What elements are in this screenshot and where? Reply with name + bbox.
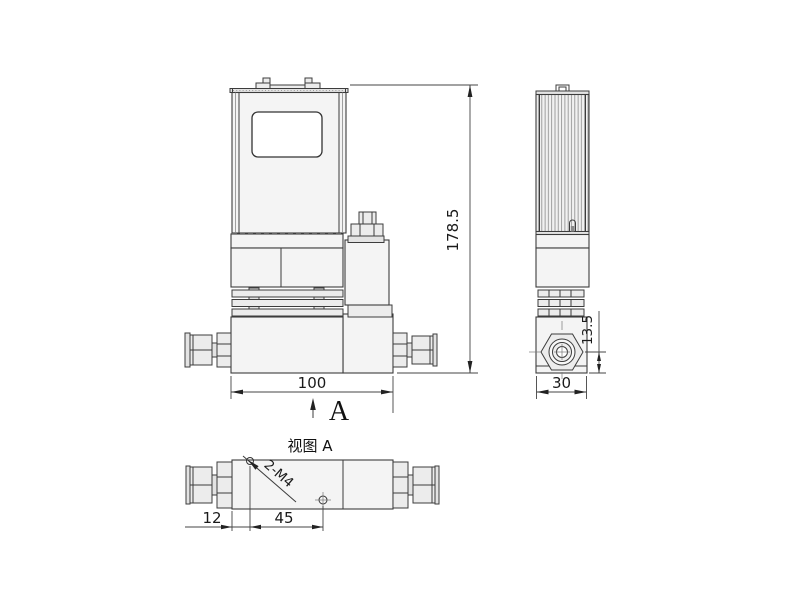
top-plate <box>230 89 348 93</box>
section-letter: A <box>329 396 350 427</box>
hole-spacing-dimension-text: 45 <box>274 509 293 527</box>
bottom-view: 2-M4 12 45 <box>185 456 439 531</box>
display-window <box>252 112 322 157</box>
valve-adjustment-cap <box>359 212 376 224</box>
side-heat-sink-fins <box>538 290 584 316</box>
outlet-fitting <box>393 333 437 367</box>
view-direction-arrow: A <box>310 396 350 427</box>
view-a-title: 视图 A <box>287 437 333 455</box>
heat-sink-fins <box>232 288 343 317</box>
bottom-inlet-fitting <box>186 462 232 508</box>
solenoid-valve <box>345 212 392 317</box>
port-center-dimension-text: 13.5 <box>580 315 596 345</box>
mid-plate <box>231 234 343 248</box>
sensor-block <box>231 248 343 287</box>
base-block <box>231 314 393 373</box>
front-view <box>185 78 437 373</box>
side-sensor-block <box>536 248 589 287</box>
top-connector-right <box>305 78 320 89</box>
dimension-depth: 30 <box>537 374 587 399</box>
top-connector-left <box>256 78 270 89</box>
depth-dimension-text: 30 <box>552 374 571 392</box>
technical-drawing-canvas: 178.5 100 A <box>0 0 800 600</box>
height-dimension-text: 178.5 <box>444 209 462 252</box>
inlet-fitting <box>185 333 231 367</box>
side-mid-plate <box>536 235 589 249</box>
technical-drawing: 178.5 100 A <box>0 0 800 600</box>
hole-offset-dimension-text: 12 <box>202 509 221 527</box>
side-top-connector <box>556 85 569 91</box>
bottom-outlet-fitting <box>393 462 439 508</box>
width-dimension-text: 100 <box>298 374 327 392</box>
valve-hex-nut <box>351 224 383 236</box>
side-finned-body <box>536 95 589 235</box>
